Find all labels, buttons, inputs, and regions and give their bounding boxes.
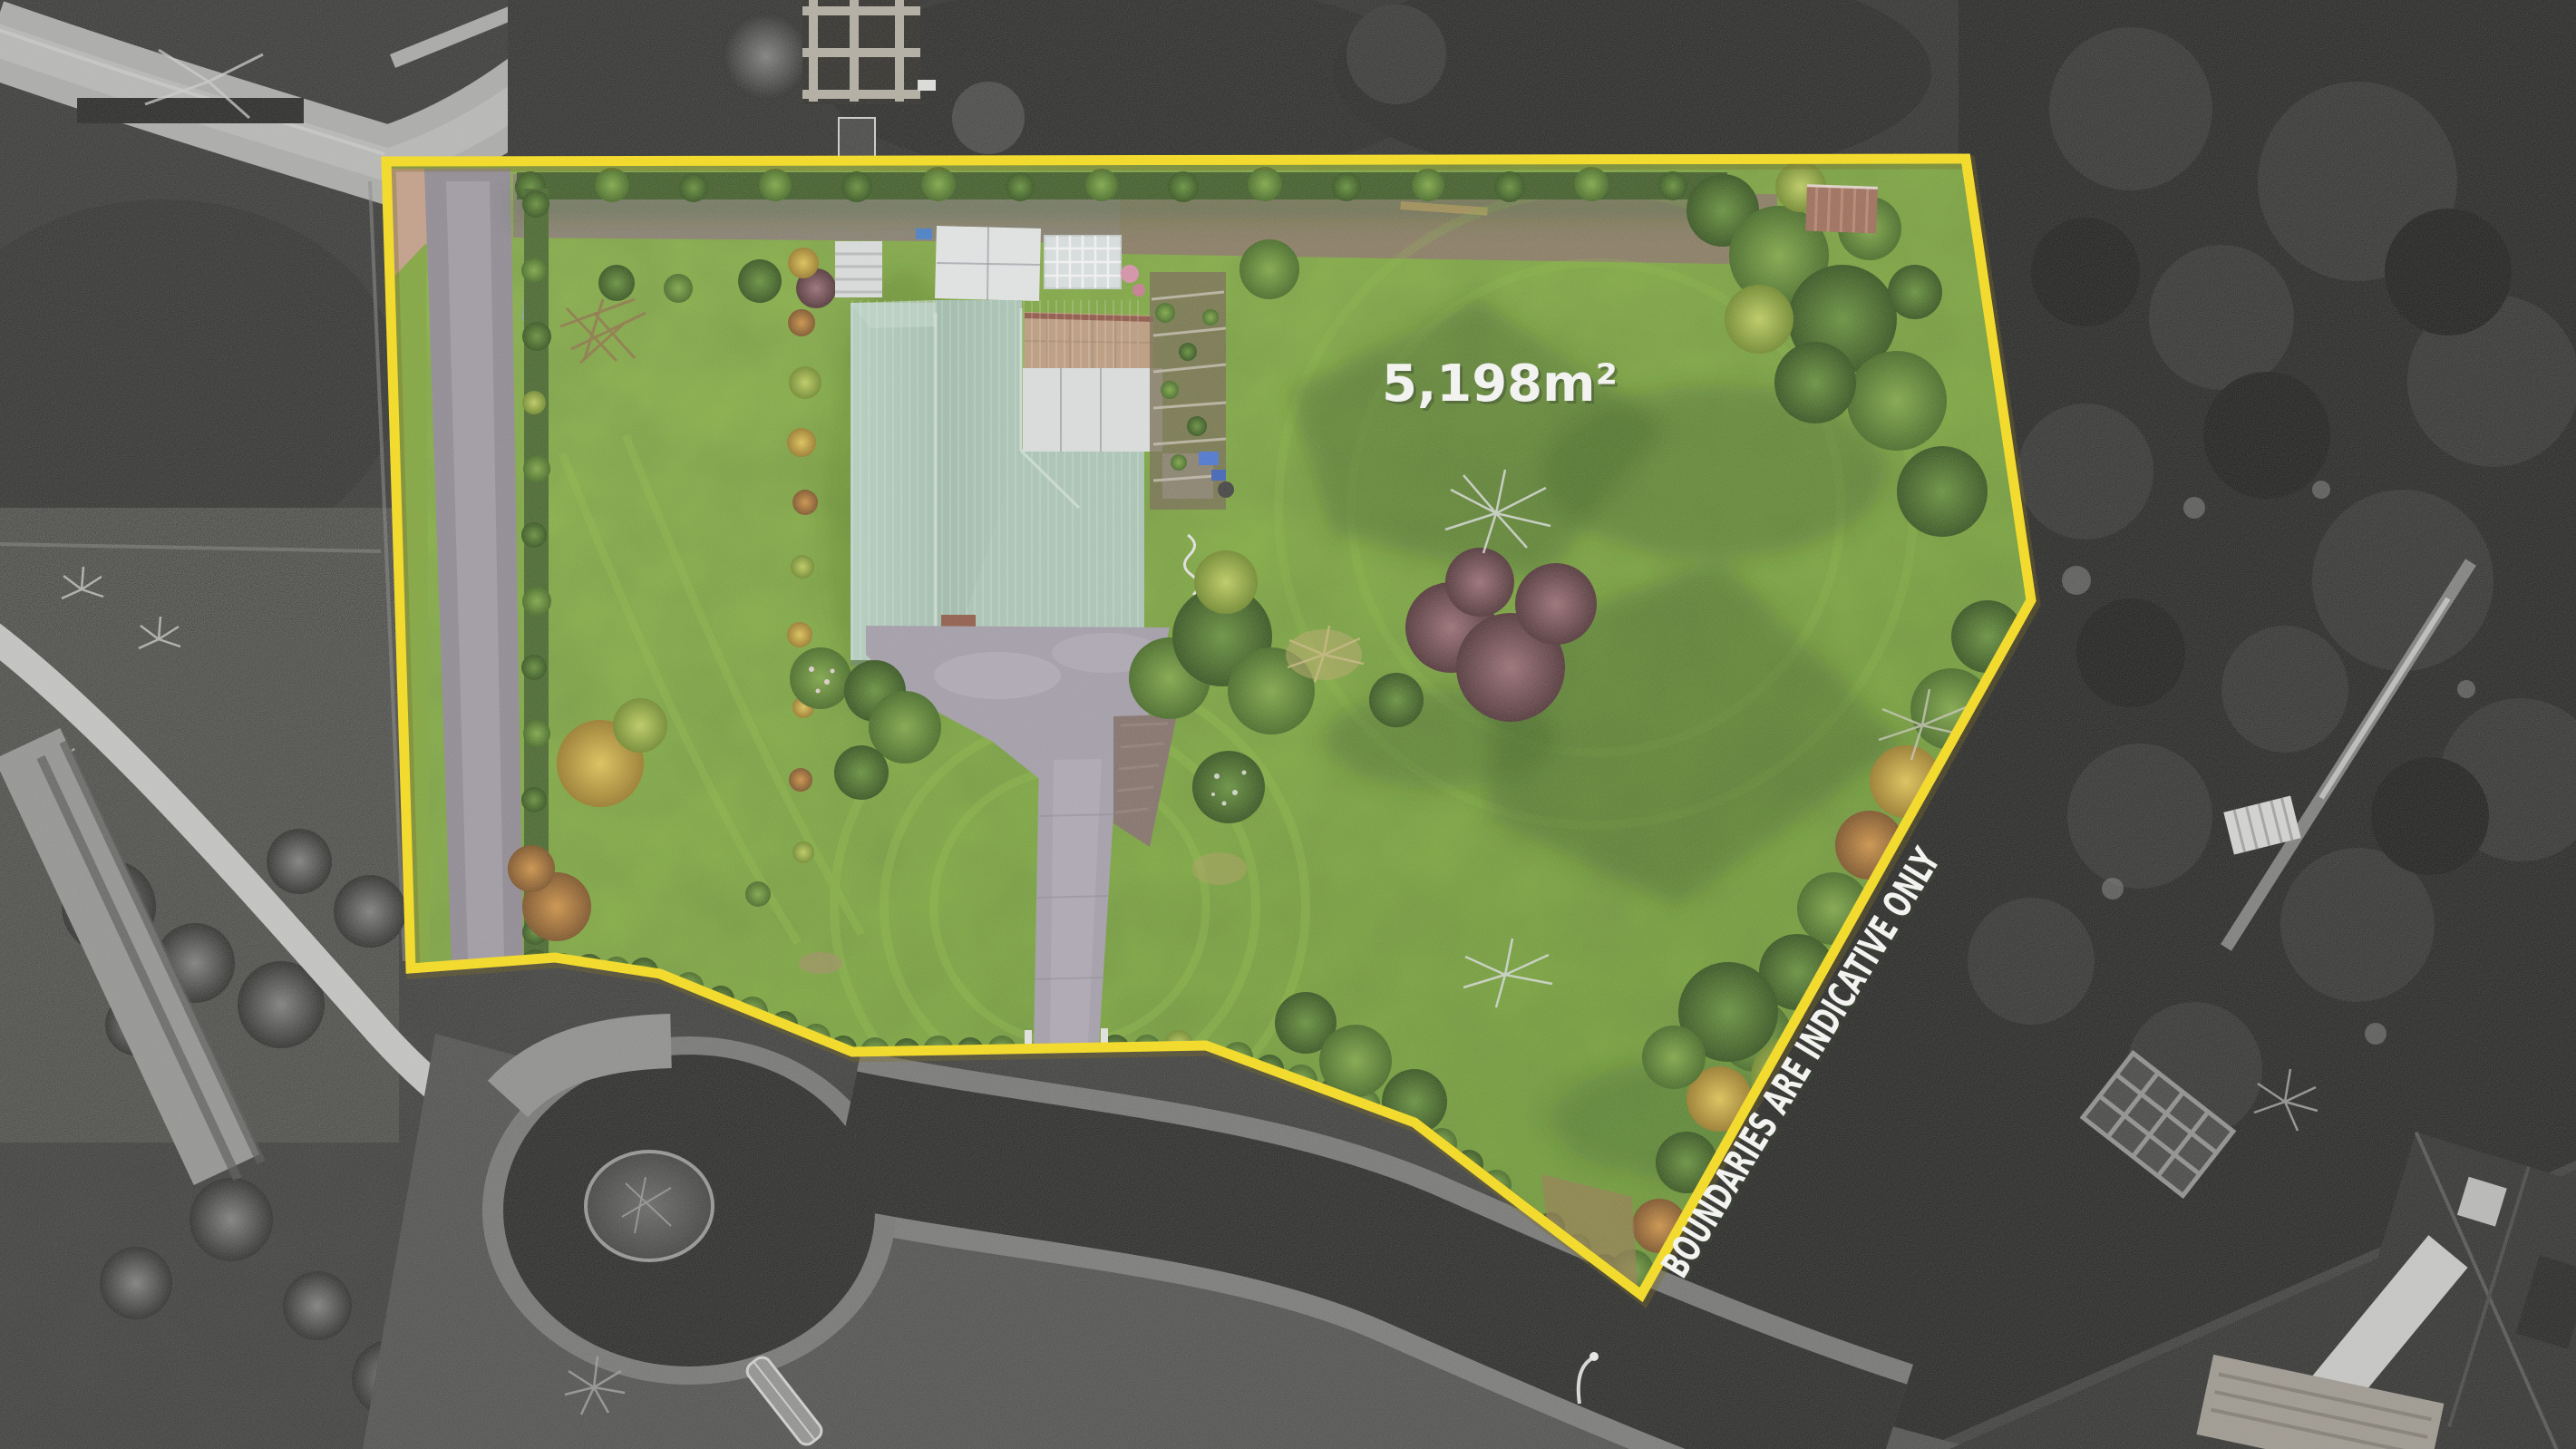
aerial-property-photo: 5,198m² 5,198m² BOUNDARIES ARE INDICATIV… bbox=[0, 0, 2576, 1449]
photo-grain bbox=[0, 0, 2576, 1449]
